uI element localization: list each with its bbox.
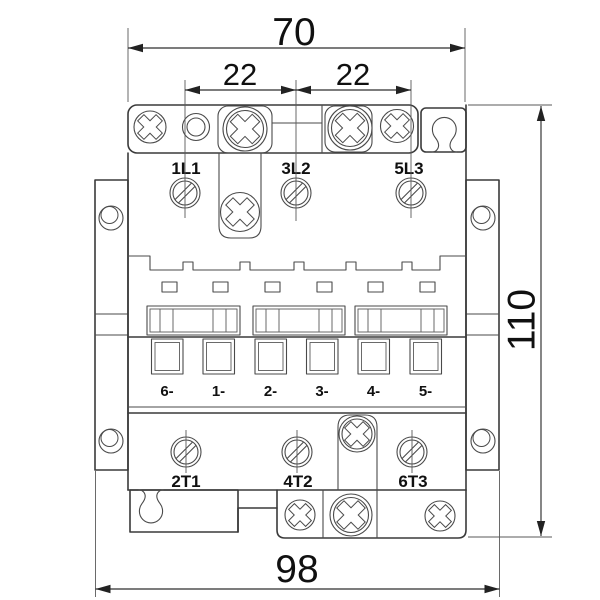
dim-value-22-left: 22 [223,57,257,92]
aux-label-3: 3- [315,383,328,400]
contactor-dimensional-drawing: 1L1 3L2 5L3 [0,0,600,600]
aux-label-1: 1- [212,383,225,400]
terminal-label-2T1: 2T1 [171,472,200,491]
pilot-hole-icon [183,114,210,141]
aux-label-4: 4- [367,383,380,400]
dim-value-22-right: 22 [336,57,370,92]
aux-label-6: 6- [160,383,173,400]
phillips-screw-icon [330,494,372,536]
phillips-screw-icon [339,416,376,453]
drawing-canvas: 1L1 3L2 5L3 [0,0,600,600]
dim-value-70: 70 [272,11,315,54]
dim-value-98: 98 [275,548,318,591]
phillips-screw-icon [328,106,372,150]
phillips-screw-icon [223,107,267,151]
terminal-label-5L3: 5L3 [394,159,423,178]
mounting-hole-icon [99,206,123,230]
aux-label-5: 5- [419,383,432,400]
mounting-hole-icon [471,429,495,453]
mounting-hole-icon [99,429,123,453]
mounting-hole-icon [471,206,495,230]
dim-value-110: 110 [501,289,544,351]
terminal-label-4T2: 4T2 [283,472,312,491]
aux-label-2: 2- [264,383,277,400]
terminal-label-6T3: 6T3 [398,472,427,491]
terminal-label-1L1: 1L1 [171,159,200,178]
